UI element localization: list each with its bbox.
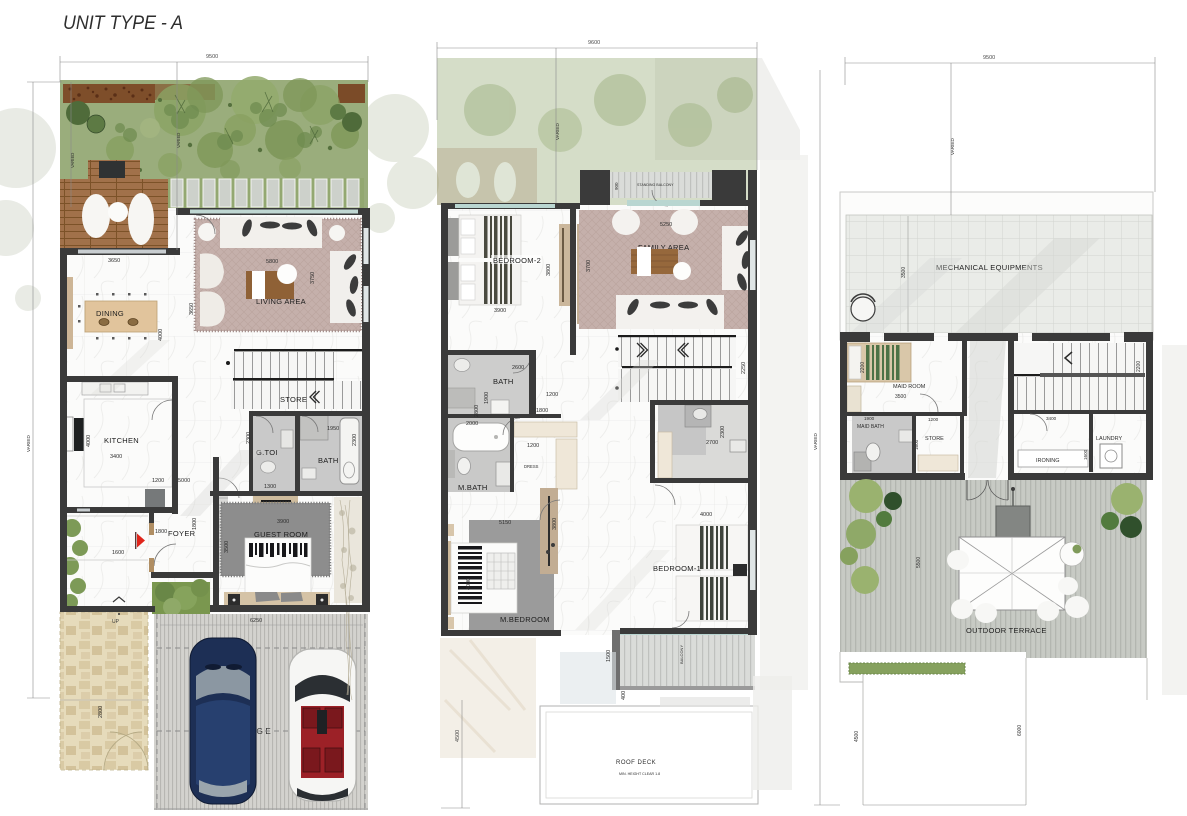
svg-text:4000: 4000 xyxy=(158,329,164,341)
svg-text:1200: 1200 xyxy=(546,392,558,398)
svg-text:6000: 6000 xyxy=(1017,725,1023,736)
svg-text:400: 400 xyxy=(621,691,627,700)
svg-text:2300: 2300 xyxy=(720,426,726,438)
svg-text:3500: 3500 xyxy=(224,541,230,553)
svg-text:MIN. HEIGHT CLEAR 1.8: MIN. HEIGHT CLEAR 1.8 xyxy=(619,772,660,776)
svg-text:3650: 3650 xyxy=(108,258,120,264)
svg-text:1900: 1900 xyxy=(864,416,875,421)
svg-text:MAID ROOM: MAID ROOM xyxy=(893,384,926,390)
svg-text:1200: 1200 xyxy=(928,417,939,422)
svg-text:1200: 1200 xyxy=(527,443,539,449)
svg-text:5150: 5150 xyxy=(499,520,511,526)
svg-text:1900: 1900 xyxy=(484,392,490,404)
svg-text:5250: 5250 xyxy=(660,222,672,228)
svg-text:LIVING AREA: LIVING AREA xyxy=(256,297,306,306)
svg-text:VARIED: VARIED xyxy=(950,138,955,155)
svg-text:4500: 4500 xyxy=(854,731,860,742)
svg-text:3750: 3750 xyxy=(310,272,316,284)
svg-text:2700: 2700 xyxy=(706,440,718,446)
svg-text:2800: 2800 xyxy=(98,706,104,718)
svg-text:BALCONY: BALCONY xyxy=(679,645,684,664)
svg-text:DRESS: DRESS xyxy=(524,464,539,469)
svg-text:1600: 1600 xyxy=(1083,449,1088,460)
svg-text:4000: 4000 xyxy=(700,512,712,518)
svg-text:3500: 3500 xyxy=(895,394,906,400)
svg-text:1950: 1950 xyxy=(327,426,339,432)
svg-text:VARIED: VARIED xyxy=(26,435,31,452)
svg-text:LAUNDRY: LAUNDRY xyxy=(1096,436,1123,442)
svg-text:2250: 2250 xyxy=(741,362,747,374)
svg-text:3900: 3900 xyxy=(277,519,289,525)
svg-text:3800: 3800 xyxy=(552,518,558,530)
svg-text:MAID BATH: MAID BATH xyxy=(857,424,884,430)
svg-text:STORE: STORE xyxy=(925,436,944,442)
svg-text:9600: 9600 xyxy=(588,40,600,46)
svg-text:KITCHEN: KITCHEN xyxy=(104,436,139,445)
svg-text:1300: 1300 xyxy=(264,484,276,490)
svg-text:5000: 5000 xyxy=(178,478,190,484)
svg-text:2600: 2600 xyxy=(512,365,524,371)
svg-text:2200: 2200 xyxy=(860,362,866,373)
svg-text:9500: 9500 xyxy=(983,55,995,61)
svg-text:M.BEDROOM: M.BEDROOM xyxy=(500,615,550,624)
svg-text:STORE: STORE xyxy=(280,395,307,404)
svg-text:6250: 6250 xyxy=(250,618,262,624)
svg-text:UNIT TYPE - A: UNIT TYPE - A xyxy=(63,13,183,34)
svg-text:VARIED: VARIED xyxy=(70,153,75,168)
svg-text:3400: 3400 xyxy=(110,454,122,460)
svg-text:UP: UP xyxy=(112,619,120,625)
svg-text:3500: 3500 xyxy=(901,267,907,278)
svg-text:2000: 2000 xyxy=(466,421,478,427)
svg-text:IRONING: IRONING xyxy=(1036,458,1060,464)
svg-text:2300: 2300 xyxy=(352,434,358,446)
svg-text:DINING: DINING xyxy=(96,309,124,318)
svg-text:1800: 1800 xyxy=(155,529,167,535)
svg-text:M.BATH: M.BATH xyxy=(458,483,488,492)
svg-text:4000: 4000 xyxy=(86,435,92,447)
svg-text:OUTDOOR TERRACE: OUTDOOR TERRACE xyxy=(966,626,1047,635)
svg-text:2300: 2300 xyxy=(246,432,252,444)
svg-text:3650: 3650 xyxy=(189,303,195,315)
svg-text:BEDROOM-2: BEDROOM-2 xyxy=(493,256,541,265)
svg-text:5500: 5500 xyxy=(916,557,922,568)
svg-text:4500: 4500 xyxy=(455,730,461,742)
svg-text:VARIED: VARIED xyxy=(813,433,818,450)
svg-text:5800: 5800 xyxy=(266,259,278,265)
svg-text:VARIED: VARIED xyxy=(176,133,181,148)
svg-text:ROOF DECK: ROOF DECK xyxy=(616,760,656,766)
svg-text:1800: 1800 xyxy=(536,408,548,414)
svg-text:1800: 1800 xyxy=(192,518,198,530)
svg-text:1200: 1200 xyxy=(152,478,164,484)
svg-text:900: 900 xyxy=(614,182,619,190)
svg-text:BATH: BATH xyxy=(493,377,514,386)
svg-text:1600: 1600 xyxy=(112,550,124,556)
svg-text:3700: 3700 xyxy=(586,260,592,272)
svg-text:4000: 4000 xyxy=(466,578,472,590)
svg-text:3900: 3900 xyxy=(494,308,506,314)
svg-text:1500: 1500 xyxy=(606,650,612,662)
svg-text:3400: 3400 xyxy=(1046,416,1057,421)
svg-text:BEDROOM-1: BEDROOM-1 xyxy=(653,564,701,573)
svg-text:9500: 9500 xyxy=(206,54,218,60)
svg-text:2200: 2200 xyxy=(1136,361,1142,372)
svg-text:BATH: BATH xyxy=(318,456,339,465)
svg-text:STANDING BALCONY: STANDING BALCONY xyxy=(637,183,674,187)
svg-text:VARIED: VARIED xyxy=(555,123,560,140)
svg-text:3800: 3800 xyxy=(546,264,552,276)
svg-text:2800: 2800 xyxy=(474,405,480,417)
